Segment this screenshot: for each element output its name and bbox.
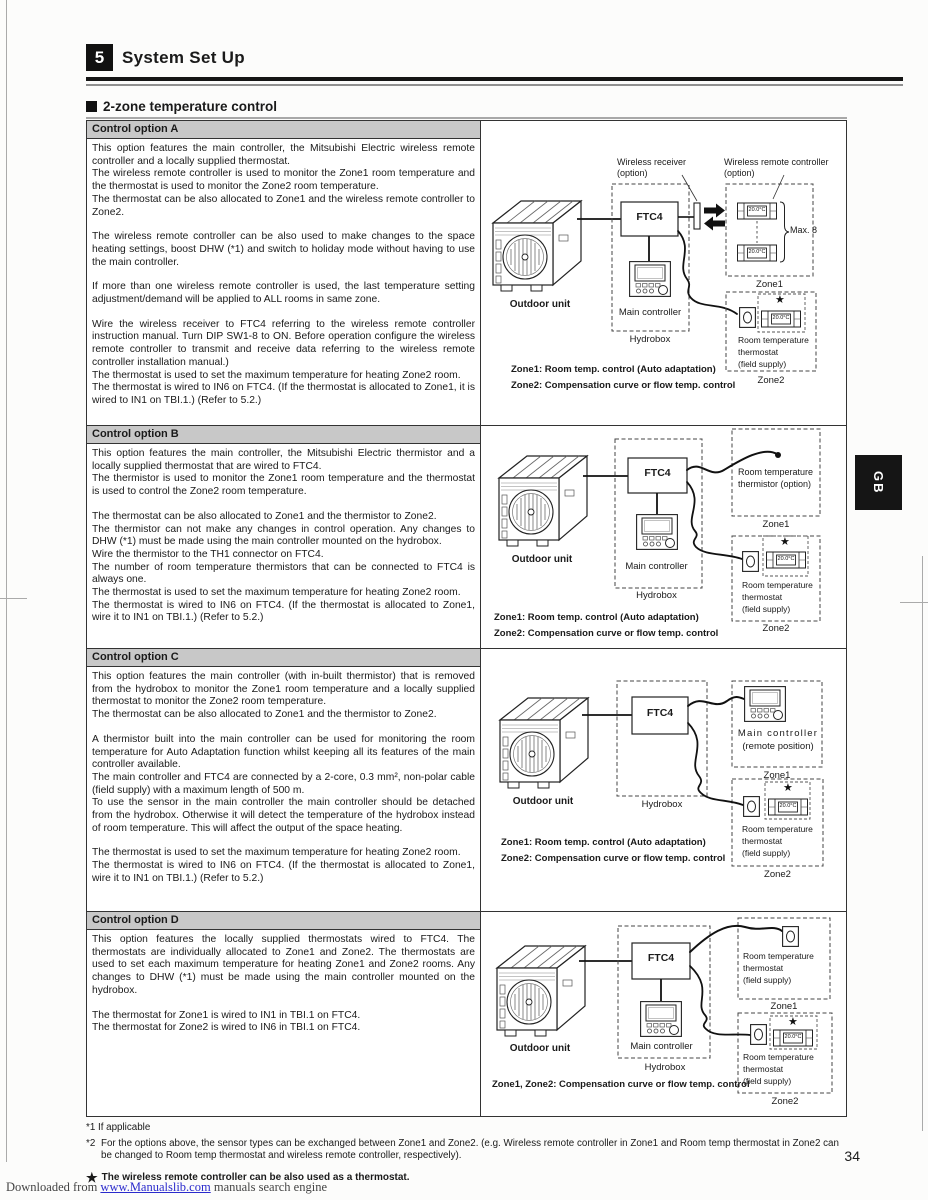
outdoor-unit-label: Outdoor unit: [495, 1043, 585, 1054]
paragraph: The thermostat is used to set the maximu…: [92, 847, 475, 860]
hydrobox-label: Hydrobox: [614, 590, 699, 601]
paragraph: If more than one wireless remote control…: [92, 281, 475, 306]
zone1-thermostat-interface-art: [783, 927, 799, 947]
outdoor-unit-label: Outdoor unit: [498, 796, 588, 807]
ftc4-label: FTC4: [628, 468, 687, 479]
room-thermostat-label: Room temperature: [742, 579, 813, 591]
footnotes: *1 If applicable *2 For the options abov…: [86, 1122, 848, 1184]
diagram-caption-2: Zone2: Compensation curve or flow temp. …: [494, 628, 718, 639]
diagram-caption-1: Zone1, Zone2: Compensation curve or flow…: [492, 1079, 750, 1090]
hydrobox-label: Hydrobox: [609, 334, 691, 345]
zone2-label: Zone2: [738, 1096, 832, 1107]
trim-line-left: [6, 0, 7, 1162]
ftc4-label: FTC4: [621, 212, 678, 223]
subsection-heading: 2-zone temperature control: [86, 99, 277, 114]
footnote-2: *2 For the options above, the sensor typ…: [86, 1138, 848, 1163]
wireless-remote-label: Wireless remote controller: [724, 157, 829, 168]
paragraph: The thermostat is used to set the maximu…: [92, 370, 475, 383]
thermostat-interface-art: [744, 797, 760, 817]
paragraph: The thermostat can be also allocated to …: [92, 511, 475, 524]
wireless-receiver-label-2: (option): [617, 168, 648, 179]
trim-tick-left: [0, 598, 27, 599]
option-a-body: This option features the main controller…: [87, 139, 480, 408]
control-option-c-row: Control option C This option features th…: [87, 649, 846, 912]
room-thermostat-label-3: (field supply): [742, 603, 790, 615]
main-controller-label-2: (remote position): [735, 741, 821, 752]
zone2-thermostat-interface-art: [751, 1025, 767, 1045]
watermark: Downloaded from www.Manualslib.com manua…: [6, 1180, 327, 1195]
star-icon: ★: [780, 537, 790, 548]
wireless-remote-label-2: (option): [724, 168, 755, 179]
wireless-receiver-art: [694, 203, 700, 229]
paragraph: The thermostat can be also allocated to …: [92, 709, 475, 722]
zone1-thermostat-label: Room temperature: [743, 950, 814, 962]
paragraph: This option features the main controller…: [92, 448, 475, 473]
paragraph: The thermostat is wired to IN6 on FTC4. …: [92, 600, 475, 625]
main-controller-label: Main controller: [609, 307, 691, 318]
arrow-left-icon: [704, 217, 725, 231]
outdoor-unit-art: [500, 698, 588, 788]
paragraph: Wire the wireless receiver to FTC4 refer…: [92, 319, 475, 370]
zone1-label: Zone1: [738, 1001, 830, 1012]
outdoor-unit-label: Outdoor unit: [497, 554, 587, 565]
paragraph: [92, 835, 475, 847]
paragraph: The thermostat for Zone1 is wired to IN1…: [92, 1010, 475, 1023]
temp-display: 20.0°C: [776, 555, 796, 564]
option-d-diagram: FTC4 Room temperature thermostat (field …: [481, 912, 845, 1116]
header-rule-thin: [86, 84, 903, 86]
room-thermostat-label-3: (field supply): [742, 847, 790, 859]
temp-display: 20.0°C: [747, 248, 767, 257]
section-bullet: [86, 101, 97, 112]
control-option-b-row: Control option B This option features th…: [87, 426, 846, 649]
watermark-prefix: Downloaded from: [6, 1180, 100, 1194]
zone2-thermostat-label-3: (field supply): [743, 1075, 791, 1087]
paragraph: The main controller and FTC4 are connect…: [92, 772, 475, 797]
temp-display: 20.0°C: [778, 802, 798, 811]
manualslib-link[interactable]: www.Manualslib.com: [100, 1180, 210, 1194]
diagram-caption-1: Zone1: Room temp. control (Auto adaptati…: [501, 837, 706, 848]
paragraph: Wire the thermistor to the TH1 connector…: [92, 549, 475, 562]
outdoor-unit-art: [493, 201, 581, 291]
ftc4-label: FTC4: [632, 708, 688, 719]
zone1-wire: [690, 926, 782, 952]
zone1-label: Zone1: [732, 519, 820, 530]
paragraph: The wireless remote controller is used t…: [92, 168, 475, 193]
outdoor-unit-label: Outdoor unit: [495, 299, 585, 310]
paragraph: To use the sensor in the main controller…: [92, 797, 475, 835]
option-c-text-cell: Control option C This option features th…: [87, 649, 481, 911]
paragraph: The thermostat can be also allocated to …: [92, 194, 475, 219]
temp-display: 20.0°C: [747, 206, 767, 215]
arrow-right-icon: [704, 204, 725, 218]
ftc4-label: FTC4: [632, 953, 690, 964]
room-thermostat-label: Room temperature: [742, 823, 813, 835]
hydrobox-label: Hydrobox: [621, 1062, 709, 1073]
thermostat-interface-art: [740, 308, 756, 328]
subsection-title: 2-zone temperature control: [103, 99, 277, 114]
temp-display: 20.0°C: [783, 1033, 803, 1042]
option-a-diagram: Wireless receiver (option) Wireless remo…: [481, 121, 845, 425]
max8-brace: [780, 202, 789, 262]
star-icon: ★: [775, 295, 785, 306]
paragraph: The number of room temperature thermisto…: [92, 562, 475, 587]
control-option-a-row: Control option A This option features th…: [87, 121, 846, 426]
option-d-body: This option features the locally supplie…: [87, 930, 480, 1035]
thermostat-interface-art: [743, 552, 759, 572]
diagram-caption-1: Zone1: Room temp. control (Auto adaptati…: [511, 364, 716, 375]
option-a-text-cell: Control option A This option features th…: [87, 121, 481, 425]
paragraph: A thermistor built into the main control…: [92, 734, 475, 772]
paragraph: [92, 307, 475, 319]
language-tab-label: GB: [871, 471, 886, 495]
main-controller-label: Main controller: [619, 1041, 704, 1052]
option-b-text-cell: Control option B This option features th…: [87, 426, 481, 648]
main-controller-label: Main controller: [735, 728, 821, 739]
main-controller-art: [630, 262, 671, 297]
footnote-2-marker: *2: [86, 1138, 101, 1163]
outdoor-unit-art: [497, 946, 585, 1036]
option-b-body: This option features the main controller…: [87, 444, 480, 625]
paragraph: The wireless remote controller can be al…: [92, 231, 475, 269]
option-b-header: Control option B: [87, 426, 480, 444]
diagram-caption-1: Zone1: Room temp. control (Auto adaptati…: [494, 612, 699, 623]
footnote-2-text: For the options above, the sensor types …: [101, 1138, 848, 1163]
zone2-thermostat-label: Room temperature: [743, 1051, 814, 1063]
main-controller-wire: [688, 697, 744, 706]
temp-display: 20.0°C: [771, 314, 791, 323]
thermistor-sensor: [775, 452, 781, 458]
diagram-caption-2: Zone2: Compensation curve or flow temp. …: [511, 380, 735, 391]
option-b-diagram: FTC4 Room temperature thermistor (option…: [481, 426, 845, 648]
zone2-thermostat-label-2: thermostat: [743, 1063, 783, 1075]
zone1-label: Zone1: [732, 770, 822, 781]
control-option-d-row: Control option D This option features th…: [87, 912, 846, 1116]
wireless-receiver-label: Wireless receiver: [617, 157, 686, 168]
section-title: System Set Up: [122, 48, 245, 68]
paragraph: This option features the locally supplie…: [92, 934, 475, 998]
paragraph: This option features the main controller…: [92, 143, 475, 168]
zone1-thermostat-label-2: thermostat: [743, 962, 783, 974]
subsection-rule: [86, 117, 847, 119]
thermistor-label: Room temperature: [738, 467, 813, 478]
main-controller-label: Main controller: [614, 561, 699, 572]
zone2-wire: [678, 231, 737, 314]
paragraph: This option features the main controller…: [92, 671, 475, 709]
trim-line-right: [922, 556, 923, 1131]
max8-label: Max. 8: [790, 225, 817, 236]
paragraph: The thermistor is used to monitor the Zo…: [92, 473, 475, 498]
paragraph: The thermostat for Zone2 is wired to IN6…: [92, 1022, 475, 1035]
zone2-label: Zone2: [732, 623, 820, 634]
star-icon: ★: [783, 783, 793, 794]
room-thermostat-label-2: thermostat: [742, 591, 782, 603]
room-thermostat-label-3: (field supply): [738, 358, 786, 370]
option-c-body: This option features the main controller…: [87, 667, 480, 886]
paragraph: [92, 269, 475, 281]
room-thermostat-label: Room temperature: [738, 334, 809, 346]
paragraph: The thermostat is wired to IN6 on FTC4. …: [92, 860, 475, 885]
room-thermostat-label-2: thermostat: [738, 346, 778, 358]
option-d-text-cell: Control option D This option features th…: [87, 912, 481, 1116]
option-c-diagram: FTC4 Main controller (remote position) Z…: [481, 649, 845, 911]
option-a-header: Control option A: [87, 121, 480, 139]
zone2-label: Zone2: [726, 375, 816, 386]
hydrobox-label: Hydrobox: [619, 799, 705, 810]
paragraph: [92, 998, 475, 1010]
control-options-table: Control option A This option features th…: [86, 120, 847, 1117]
main-controller-art: [637, 515, 678, 550]
star-icon: ★: [788, 1017, 798, 1028]
zone1-label: Zone1: [726, 279, 813, 290]
zone2-label: Zone2: [732, 869, 823, 880]
room-thermostat-label-2: thermostat: [742, 835, 782, 847]
zone1-thermostat-label-3: (field supply): [743, 974, 791, 986]
main-controller-art: [745, 687, 786, 722]
outdoor-unit-art: [499, 456, 587, 546]
diagram-caption-2: Zone2: Compensation curve or flow temp. …: [501, 853, 725, 864]
trim-tick-right: [900, 602, 928, 603]
paragraph: [92, 499, 475, 511]
option-c-header: Control option C: [87, 649, 480, 667]
footnote-1: *1 If applicable: [86, 1122, 848, 1135]
language-tab: GB: [855, 455, 902, 510]
header-rule-thick: [86, 77, 903, 81]
paragraph: The thermistor can not make any changes …: [92, 524, 475, 549]
option-d-header: Control option D: [87, 912, 480, 930]
thermistor-label-2: thermistor (option): [738, 479, 811, 490]
page-number: 34: [812, 1148, 860, 1164]
watermark-suffix: manuals search engine: [211, 1180, 327, 1194]
main-controller-art: [641, 1002, 682, 1037]
paragraph: [92, 722, 475, 734]
paragraph: The thermostat is used to set the maximu…: [92, 587, 475, 600]
section-number-badge: 5: [86, 44, 113, 71]
paragraph: The thermostat is wired to IN6 on FTC4. …: [92, 382, 475, 407]
paragraph: [92, 219, 475, 231]
